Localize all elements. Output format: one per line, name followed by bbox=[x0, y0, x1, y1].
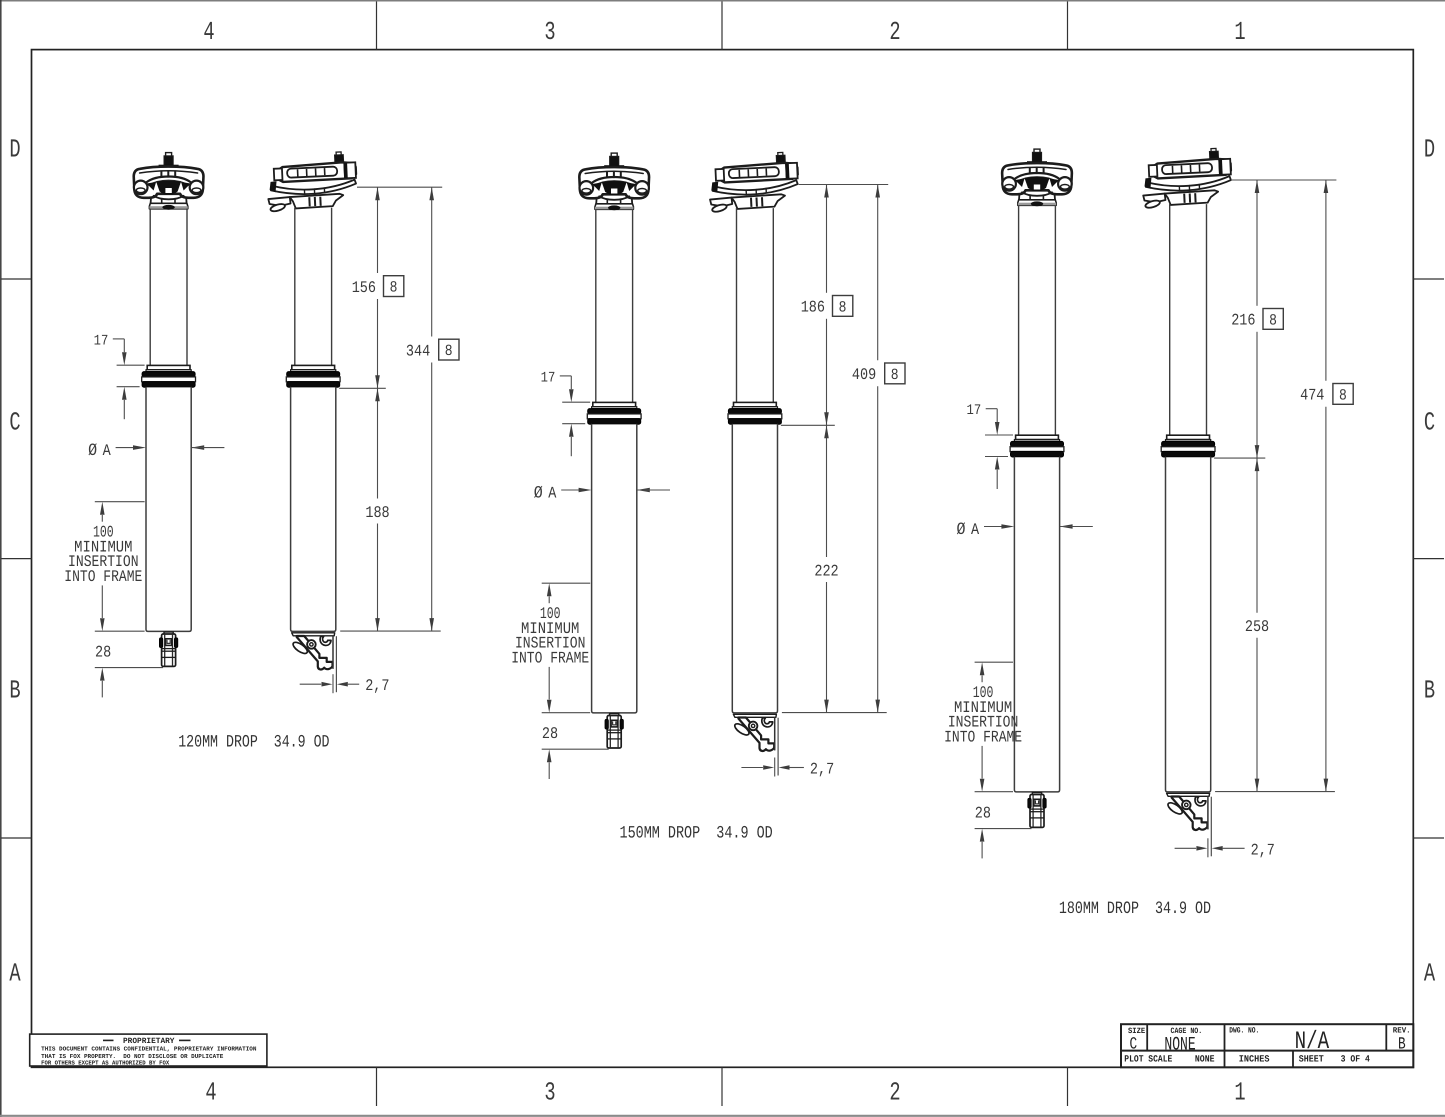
svg-text:3 OF 4: 3 OF 4 bbox=[1341, 1054, 1371, 1065]
svg-text:FOR OTHERS EXCEPT AS AUTHORIZE: FOR OTHERS EXCEPT AS AUTHORIZED BY FOX bbox=[41, 1060, 170, 1067]
svg-text:8: 8 bbox=[891, 366, 899, 384]
svg-text:4: 4 bbox=[205, 1078, 216, 1108]
svg-text:3: 3 bbox=[544, 1078, 555, 1108]
svg-text:188: 188 bbox=[365, 505, 389, 523]
svg-text:B: B bbox=[9, 676, 20, 706]
svg-text:17: 17 bbox=[967, 402, 982, 419]
svg-text:INTO FRAME: INTO FRAME bbox=[944, 729, 1022, 747]
svg-text:A: A bbox=[9, 959, 21, 989]
svg-text:B: B bbox=[1424, 676, 1435, 706]
svg-text:258: 258 bbox=[1245, 619, 1269, 637]
svg-text:PLOT SCALE: PLOT SCALE bbox=[1124, 1054, 1172, 1065]
svg-text:17: 17 bbox=[541, 369, 556, 386]
svg-text:1: 1 bbox=[1234, 17, 1245, 47]
svg-text:17: 17 bbox=[94, 332, 109, 349]
svg-text:156: 156 bbox=[352, 280, 376, 298]
svg-text:2: 2 bbox=[889, 17, 900, 47]
svg-text:8: 8 bbox=[445, 342, 453, 360]
svg-text:A: A bbox=[971, 522, 980, 540]
svg-text:C: C bbox=[9, 408, 20, 438]
svg-text:180MM DROP 34.9 OD: 180MM DROP 34.9 OD bbox=[1059, 900, 1211, 920]
svg-text:8: 8 bbox=[839, 298, 847, 316]
svg-text:28: 28 bbox=[542, 726, 558, 744]
svg-text:D: D bbox=[9, 135, 20, 165]
svg-text:8: 8 bbox=[390, 278, 398, 296]
svg-text:2,7: 2,7 bbox=[365, 678, 389, 696]
svg-text:28: 28 bbox=[975, 805, 991, 823]
svg-text:NONE: NONE bbox=[1164, 1033, 1195, 1055]
svg-text:186: 186 bbox=[801, 300, 825, 318]
svg-text:INCHES: INCHES bbox=[1239, 1054, 1270, 1065]
svg-text:SHEET: SHEET bbox=[1299, 1054, 1324, 1065]
svg-text:A: A bbox=[103, 443, 112, 461]
svg-text:2,7: 2,7 bbox=[1251, 842, 1275, 860]
svg-text:A: A bbox=[548, 485, 557, 503]
svg-text:INTO FRAME: INTO FRAME bbox=[511, 650, 589, 668]
svg-text:REV.: REV. bbox=[1393, 1026, 1411, 1035]
svg-text:2: 2 bbox=[889, 1078, 900, 1108]
svg-text:1: 1 bbox=[1234, 1078, 1245, 1108]
svg-text:A: A bbox=[1424, 959, 1436, 989]
svg-text:2,7: 2,7 bbox=[810, 762, 834, 780]
svg-text:3: 3 bbox=[544, 17, 555, 47]
svg-text:216: 216 bbox=[1231, 313, 1255, 331]
svg-text:Ø: Ø bbox=[534, 484, 543, 504]
svg-text:INTO FRAME: INTO FRAME bbox=[64, 569, 142, 587]
svg-text:C: C bbox=[1130, 1036, 1138, 1055]
svg-text:120MM DROP 34.9 OD: 120MM DROP 34.9 OD bbox=[178, 733, 329, 753]
svg-text:Ø: Ø bbox=[88, 441, 97, 461]
svg-text:150MM DROP 34.9 OD: 150MM DROP 34.9 OD bbox=[620, 824, 773, 844]
svg-text:THIS DOCUMENT CONTAINS CONFIDE: THIS DOCUMENT CONTAINS CONFIDENTIAL, PRO… bbox=[41, 1045, 257, 1052]
svg-text:409: 409 bbox=[852, 367, 876, 385]
svg-text:N/A: N/A bbox=[1295, 1027, 1330, 1056]
svg-text:B: B bbox=[1398, 1035, 1406, 1054]
svg-text:8: 8 bbox=[1269, 311, 1277, 329]
svg-text:D: D bbox=[1424, 135, 1435, 165]
svg-text:28: 28 bbox=[95, 644, 111, 662]
svg-text:Ø: Ø bbox=[957, 520, 966, 540]
svg-text:NONE: NONE bbox=[1195, 1054, 1215, 1065]
svg-text:8: 8 bbox=[1339, 386, 1347, 404]
svg-text:DWG. NO.: DWG. NO. bbox=[1229, 1026, 1259, 1035]
svg-text:344: 344 bbox=[406, 343, 430, 361]
svg-text:C: C bbox=[1424, 408, 1435, 438]
svg-text:SIZE: SIZE bbox=[1128, 1027, 1145, 1036]
svg-text:4: 4 bbox=[203, 17, 214, 47]
svg-text:222: 222 bbox=[814, 563, 838, 581]
svg-text:474: 474 bbox=[1300, 388, 1324, 406]
